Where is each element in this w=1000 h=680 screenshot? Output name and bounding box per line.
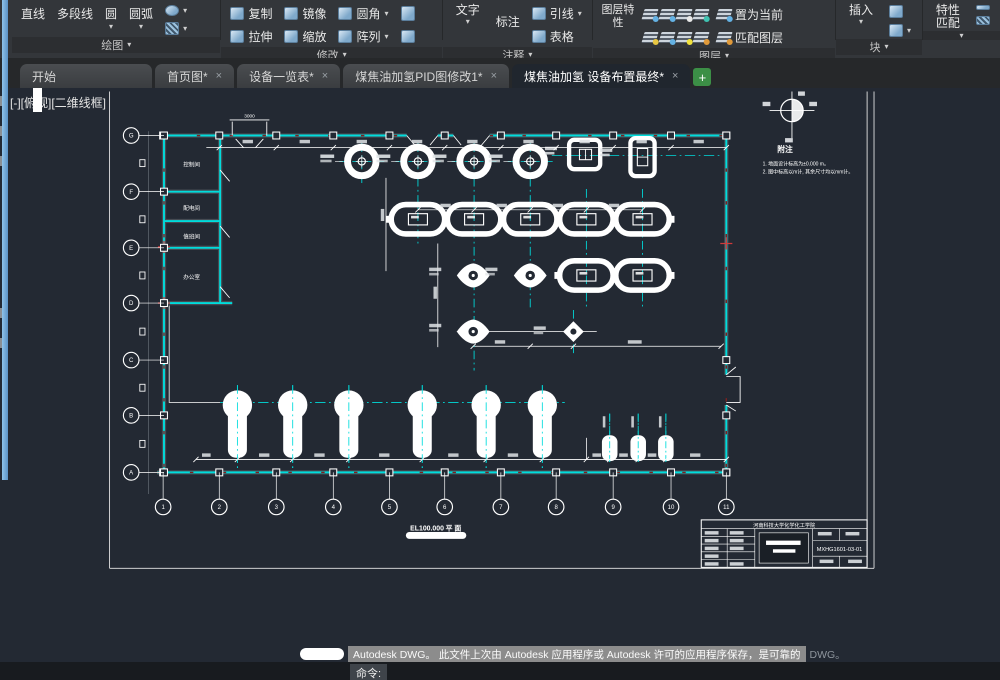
vesica-dot [472, 274, 475, 277]
chevron-down-icon: ▾ [127, 41, 131, 49]
dim-text-blob [592, 453, 601, 456]
col-bubble-label: 11 [723, 505, 730, 511]
layer-on-icon[interactable] [641, 32, 658, 43]
array-icon [338, 30, 352, 43]
note-line: 1. 地面设计标高为±0.000 m。 [763, 161, 829, 168]
scale-button[interactable]: 缩放 [281, 26, 329, 47]
square-equipment [569, 140, 600, 169]
vessel-tag-blob [579, 216, 587, 219]
insert-button[interactable]: 插入▾ [842, 3, 880, 27]
vessel-end-tab [498, 216, 501, 223]
arc-button[interactable]: 圆弧▾ [126, 3, 156, 33]
dim-text-blob [690, 453, 700, 456]
vessel-tag-blob [636, 272, 644, 275]
circle-label: 圆 [105, 5, 117, 22]
properties-panel-label[interactable]: ▾ [923, 31, 1000, 40]
layer-thaw-icon[interactable] [675, 32, 692, 43]
linetype-button[interactable] [973, 14, 993, 27]
chevron-down-icon: ▾ [884, 43, 888, 51]
column-marker [723, 412, 730, 419]
equipment-tag-blob [429, 273, 439, 276]
ribbon-panel-draw: 直线 多段线 圆▾ 圆弧▾ ▾ ▾ 绘图▾ [12, 0, 221, 40]
dim-text-blob [314, 453, 324, 456]
stretch-icon [230, 30, 244, 43]
lineweight-button[interactable] [973, 3, 993, 12]
layer-properties-button[interactable]: 图层特性 [599, 3, 637, 31]
porch-dimension: 3000 [244, 113, 255, 119]
grid-tick [140, 216, 145, 223]
equipment-tag-blob [376, 155, 390, 158]
dwg-suffix: DWG。 [810, 647, 846, 662]
dim-text-blob [412, 140, 422, 143]
ribbon-panel-layer: 图层特性 置为当前 [593, 0, 836, 40]
close-icon[interactable]: × [322, 70, 328, 82]
polyline-label: 多段线 [57, 5, 93, 22]
equipment-tag-blob [376, 160, 387, 163]
vessel-end-tab [386, 216, 389, 223]
close-icon[interactable]: × [672, 70, 678, 82]
block-editor-button[interactable]: ▾ [886, 22, 914, 39]
title-block-header: 河南科技大学化学化工学院 [753, 521, 815, 529]
equipment-tag-blob [429, 329, 439, 332]
new-tab-button[interactable]: + [693, 68, 711, 86]
vessel-tag-blob [631, 416, 634, 427]
fillet-button[interactable]: 圆角▾ [335, 3, 391, 24]
equipment-tag-blob [485, 273, 495, 276]
chevron-down-icon: ▾ [859, 18, 863, 26]
circle-button[interactable]: 圆▾ [102, 3, 120, 33]
column-marker [668, 132, 675, 139]
plan-text: 平 面 [446, 524, 462, 532]
table-icon [532, 30, 546, 43]
ellipse-button[interactable]: ▾ [162, 3, 190, 18]
column-marker [723, 132, 730, 139]
dim-text-blob [243, 140, 253, 143]
equipment-tag-blob [600, 154, 610, 157]
viewport-controls[interactable]: [-][俯视][二维线框] [10, 94, 106, 111]
row-bubble-label: E [129, 246, 133, 252]
chevron-down-icon: ▾ [385, 10, 389, 18]
vessel-end-tab [671, 272, 674, 279]
layer-lock-icon[interactable] [692, 9, 709, 20]
vessel-tag-blob [659, 416, 662, 427]
layer-isolate-icon[interactable] [658, 32, 675, 43]
chevron-down-icon: ▾ [907, 27, 911, 35]
note-line: 2. 图中标高以m计, 其余尺寸均以mm计。 [763, 169, 854, 176]
vesica-dot [529, 274, 532, 277]
dim-text-blob [636, 140, 646, 143]
vessel-tag-blob [636, 216, 644, 219]
tab-start[interactable]: 开始 [20, 64, 152, 88]
dim-text-blob [628, 340, 642, 343]
vessel-tag-blob [523, 216, 531, 219]
progress-pill [300, 648, 344, 660]
diamond-hole [570, 329, 576, 335]
tab-shouyetu[interactable]: 首页图*× [155, 64, 234, 88]
drawing-number: MXHG1601-03-01 [817, 547, 863, 553]
tab-shebei-yilanbiao[interactable]: 设备一览表*× [237, 64, 340, 88]
column-marker [497, 132, 504, 139]
line-label: 直线 [21, 5, 45, 22]
polyline-button[interactable]: 多段线 [54, 3, 96, 24]
row-bubble-label: B [129, 414, 133, 420]
lineweight-icon [976, 5, 990, 10]
chevron-down-icon: ▾ [466, 18, 470, 26]
equipment-tag-blob [485, 268, 497, 271]
mirror-button[interactable]: 镜像 [281, 3, 329, 24]
dim-text-blob [300, 140, 310, 143]
dim-text-blob [448, 453, 458, 456]
dim-text-blob [497, 204, 507, 207]
text-button[interactable]: 文字▾ [449, 3, 487, 27]
create-block-button[interactable] [886, 3, 914, 20]
ribbon-panel-modify: 复制 镜像 圆角▾ 拉伸 缩放 阵列▾ 修改▾ [221, 0, 442, 40]
draw-panel-label[interactable]: 绘图▾ [12, 37, 220, 53]
dwg-trust-message: Autodesk DWG。 此文件上次由 Autodesk 应用程序或 Auto… [348, 646, 806, 662]
dim-text-blob [357, 140, 367, 143]
command-line-area[interactable] [0, 662, 1000, 680]
create-block-icon [889, 5, 903, 18]
column-marker [273, 132, 280, 139]
tab-shebei-buzhi-active[interactable]: 煤焦油加氢 设备布置最终*× [512, 64, 690, 88]
match-layer-button[interactable]: 匹配图层 [714, 27, 786, 48]
leader-icon [532, 7, 546, 20]
dim-text-blob [379, 453, 389, 456]
dim-text-blob [381, 209, 384, 221]
chevron-down-icon: ▾ [139, 23, 143, 31]
equipment-tag-blob [320, 155, 334, 158]
equipment-tag-blob [489, 155, 503, 158]
dim-text-blob [433, 287, 436, 299]
notification-bar: Autodesk DWG。 此文件上次由 Autodesk 应用程序或 Auto… [300, 646, 846, 662]
dim-text-blob [553, 204, 563, 207]
room-label: 配电间 [183, 204, 200, 212]
row-bubble-label: C [129, 358, 134, 364]
row-bubble-label: D [129, 301, 134, 307]
column-marker [723, 357, 730, 364]
vessel-end-tab [611, 272, 614, 279]
hatch-icon [165, 22, 179, 35]
ribbon-panel-block: 插入▾ ▾ 块▾ [836, 0, 923, 40]
column-marker [386, 132, 393, 139]
equipment-tag-blob [545, 152, 555, 155]
close-icon[interactable]: × [216, 70, 222, 82]
autocad-window: 直线 多段线 圆▾ 圆弧▾ ▾ ▾ 绘图▾ 复制 [0, 0, 1000, 680]
mirror-icon [284, 7, 298, 20]
layer-edit-icon[interactable] [658, 9, 675, 20]
equipment-tag-blob [534, 332, 544, 335]
polyline-edit-button[interactable] [398, 28, 418, 45]
equipment-tag-blob [429, 324, 441, 327]
row-bubble-label: F [129, 190, 133, 196]
grid-tick [140, 328, 145, 335]
chevron-down-icon: ▾ [183, 7, 187, 15]
dim-text-blob [440, 204, 450, 207]
move-icon [401, 6, 415, 21]
dim-text-blob [609, 204, 619, 207]
grid-tick [140, 272, 145, 279]
block-editor-icon [889, 24, 903, 37]
layer-pin-icon[interactable] [641, 9, 658, 20]
column-marker [216, 132, 223, 139]
hatch-button[interactable]: ▾ [162, 20, 190, 37]
dim-text-blob [693, 140, 703, 143]
dim-text-blob [467, 140, 477, 143]
ribbon-panel-annotate: 文字▾ 标注 引线▾ 表格 注释▾ [443, 0, 593, 40]
equipment-tag-blob [600, 148, 612, 151]
dim-text-blob [523, 140, 533, 143]
north-arrow [763, 91, 817, 142]
dim-text-blob [619, 453, 628, 456]
vessel-tag-blob [579, 272, 587, 275]
table-button[interactable]: 表格 [529, 26, 585, 47]
grid-tick [140, 160, 145, 167]
vessel-end-tab [611, 216, 614, 223]
command-prompt[interactable]: 命令: [350, 664, 387, 680]
column-marker [330, 132, 337, 139]
column-marker [610, 132, 617, 139]
vessel-end-tab [442, 216, 445, 223]
copy-button[interactable]: 复制 [227, 3, 275, 24]
ribbon-panel-properties: 特性匹配 ▾ [923, 0, 1000, 40]
chevron-down-icon: ▾ [578, 10, 582, 18]
ellipse-icon [165, 5, 179, 16]
leader-button[interactable]: 引线▾ [529, 3, 585, 24]
vessel-tag-blob [603, 416, 606, 427]
room-label: 控制间 [183, 161, 200, 169]
file-tab-bar: 开始 首页图*× 设备一览表*× 煤焦油加氢PID图修改1*× 煤焦油加氢 设备… [0, 58, 1000, 88]
vesica-dot [472, 330, 475, 333]
equipment-tag-blob [534, 326, 546, 329]
block-panel-label[interactable]: 块▾ [836, 39, 922, 55]
vessel-tag-blob [411, 216, 419, 219]
model-space-canvas[interactable]: [-][俯视][二维线框] 3000 [0, 88, 1000, 680]
scale-icon [284, 30, 298, 43]
dim-text-blob [259, 453, 269, 456]
notes-title: 附注 [777, 144, 793, 154]
sheet-border [110, 91, 874, 568]
set-current-button[interactable]: 置为当前 [714, 4, 786, 25]
drawing-notes: 附注 1. 地面设计标高为±0.000 m。 2. 图中标高以m计, 其余尺寸均… [763, 144, 854, 176]
dim-text-blob [508, 453, 518, 456]
equipment-tag-blob [433, 160, 444, 163]
copy-icon [230, 7, 244, 20]
plan-elevation-label: EL100.000 平 面 [406, 524, 466, 539]
elevation-text: EL100.000 [410, 525, 444, 532]
equipment-tag-blob [320, 160, 331, 163]
fillet-icon [338, 7, 352, 20]
col-bubble-label: 10 [668, 505, 675, 511]
layer-freeze-icon[interactable] [675, 9, 692, 20]
chevron-down-icon: ▾ [385, 33, 389, 41]
row-bubble-label: G [129, 134, 134, 140]
dim-text-blob [202, 453, 211, 456]
polyline-edit-icon [401, 30, 415, 43]
move-button[interactable] [398, 4, 418, 23]
room-label: 值班间 [183, 232, 200, 240]
array-button[interactable]: 阵列▾ [335, 26, 391, 47]
red-reference-marks [158, 237, 732, 309]
line-button[interactable]: 直线 [18, 3, 48, 24]
ribbon: 直线 多段线 圆▾ 圆弧▾ ▾ ▾ 绘图▾ 复制 [0, 0, 1000, 59]
text-cursor [33, 88, 42, 112]
vessel-tag-blob [467, 216, 475, 219]
tab-pid-xiugai[interactable]: 煤焦油加氢PID图修改1*× [343, 64, 509, 88]
room-label: 办公室 [183, 273, 200, 281]
grid-tick [140, 384, 145, 391]
equipment-tag-blob [433, 155, 447, 158]
dim-text-blob [648, 453, 657, 456]
column-marker [441, 132, 448, 139]
arc-label: 圆弧 [129, 5, 153, 22]
docked-palette-edge[interactable] [2, 0, 8, 480]
plan-drawing: 3000 [0, 88, 1000, 646]
chevron-down-icon: ▾ [959, 32, 963, 40]
grid-tick [140, 440, 145, 447]
title-block: 河南科技大学化学化工学院 MXHG1601-03-01 [701, 520, 867, 568]
layers-icon [715, 9, 732, 20]
dimension-button[interactable]: 标注 [493, 11, 523, 32]
column-marker [553, 132, 560, 139]
close-icon[interactable]: × [491, 70, 497, 82]
vessel-end-tab [671, 216, 674, 223]
chevron-down-icon: ▾ [109, 23, 113, 31]
chevron-down-icon: ▾ [183, 25, 187, 33]
stretch-button[interactable]: 拉伸 [227, 26, 275, 47]
layer-unlock-icon[interactable] [692, 32, 709, 43]
match-properties-button[interactable]: 特性匹配 [929, 3, 967, 31]
vessel-end-tab [554, 216, 557, 223]
linetype-icon [976, 16, 990, 25]
dim-text-blob [495, 340, 505, 343]
layers-icon [715, 32, 732, 43]
vessel-end-tab [554, 272, 557, 279]
equipment-tag-blob [489, 160, 500, 163]
equipment-tag-blob [429, 268, 441, 271]
dim-text-blob [579, 140, 589, 143]
